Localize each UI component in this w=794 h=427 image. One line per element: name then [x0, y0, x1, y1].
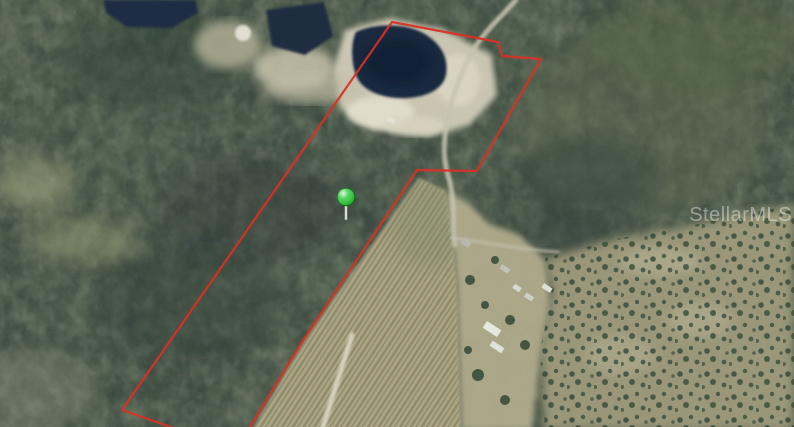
grain-dark	[0, 0, 794, 427]
watermark-text: StellarMLS	[689, 204, 792, 226]
aerial-photo-canvas: StellarMLS	[0, 0, 794, 427]
aerial-photo: StellarMLS	[0, 0, 794, 427]
pin-head-shading	[337, 188, 355, 206]
photo-grain	[0, 0, 794, 427]
